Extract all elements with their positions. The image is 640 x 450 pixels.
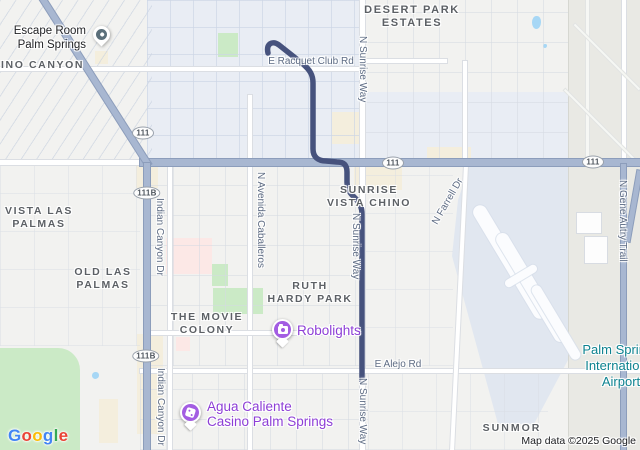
- map-attribution: Map data ©2025 Google: [521, 435, 636, 447]
- neighborhood-vista-las-palmas: VISTA LAS PALMAS: [5, 205, 73, 231]
- road-vista-chino-west: [0, 160, 142, 165]
- neighborhood-line: DESERT PARK: [364, 4, 460, 17]
- airport-terminal-2: [584, 236, 608, 264]
- road-label-gene-autry: N Gene Autry Trail: [617, 180, 628, 272]
- shield-label: 111: [586, 158, 599, 167]
- neighborhood-line: PALMAS: [5, 218, 73, 231]
- casino-label[interactable]: Agua Caliente Casino Palm Springs: [207, 399, 333, 429]
- road-racquet-club-east: [361, 59, 447, 63]
- shield-label: 111: [136, 129, 149, 138]
- neighborhood-line: HARDY PARK: [267, 293, 352, 306]
- google-logo-letter: G: [8, 426, 22, 445]
- road-indian-canyon: [168, 163, 172, 450]
- robolights-marker[interactable]: [272, 319, 293, 340]
- neighborhood-line: SUNRISE: [327, 184, 411, 197]
- road-label-avenida-caballeros: N Avenida Caballeros: [255, 172, 266, 288]
- neighborhood-line: PALMAS: [74, 279, 131, 292]
- commercial-block-6: [99, 399, 118, 443]
- poi-label-line: Escape Room: [0, 24, 86, 38]
- neighborhood-line: THE MOVIE: [171, 311, 243, 324]
- neighborhood-line: ESTATES: [364, 17, 460, 30]
- neighborhood-sunrise-vista-chino: SUNRISE VISTA CHINO: [327, 184, 411, 210]
- road-label-sunrise-mid: N Sunrise Way: [350, 213, 361, 287]
- neighborhood-movie-colony: THE MOVIE COLONY: [171, 311, 243, 337]
- shield-111-palm-canyon: 111: [132, 127, 154, 140]
- road-label-indian-canyon-bottom: Indian Canyon Dr: [155, 368, 166, 450]
- neighborhood-chino-canyon: INO CANYON: [1, 59, 84, 72]
- escape-room-label[interactable]: Escape Room Palm Springs: [0, 24, 86, 52]
- road-gene-autry-north: [622, 0, 626, 164]
- neighborhood-line: RUTH: [267, 280, 352, 293]
- shield-label: 111B: [137, 189, 156, 198]
- google-logo-letter: o: [22, 426, 33, 445]
- road-label-racquet-club: E Racquet Club Rd: [268, 56, 354, 67]
- street-grid-north: [147, 0, 361, 163]
- camera-icon: [278, 326, 288, 334]
- shield-label: 111: [386, 159, 399, 168]
- neighborhood-old-las-palmas: OLD LAS PALMAS: [74, 266, 131, 292]
- shield-111-center: 111: [382, 157, 404, 170]
- road-east-zone-vertical: [586, 0, 589, 164]
- road-label-alejo: E Alejo Rd: [375, 359, 422, 370]
- airport-label-line: Airport: [556, 374, 640, 390]
- neighborhood-line: COLONY: [171, 324, 243, 337]
- map-canvas[interactable]: 111 111B 111 111 111B E Racquet Club Rd …: [0, 0, 640, 450]
- road-label-indian-canyon-mid: Indian Canyon Dr: [154, 198, 165, 294]
- road-farrell-north: [463, 61, 467, 164]
- poi-label-line: Palm Springs: [0, 38, 86, 52]
- neighborhood-ruth-hardy-park: RUTH HARDY PARK: [267, 280, 352, 306]
- airport-label-line: International: [556, 358, 640, 374]
- robolights-label[interactable]: Robolights: [297, 323, 361, 338]
- street-grid-west: [0, 166, 140, 346]
- road-avenida-caballeros: [248, 95, 252, 450]
- neighborhood-line: VISTA LAS: [5, 205, 73, 218]
- shield-label: 111B: [136, 352, 155, 361]
- casino-marker[interactable]: [180, 402, 201, 423]
- neighborhood-sunmor: SUNMOR: [483, 422, 542, 435]
- shield-111-east: 111: [582, 156, 604, 169]
- google-logo[interactable]: Google: [8, 426, 68, 446]
- poi-label-line: Agua Caliente: [207, 399, 333, 414]
- google-logo-letter: g: [43, 426, 54, 445]
- poi-label-line: Casino Palm Springs: [207, 414, 333, 429]
- neighborhood-desert-park-estates: DESERT PARK ESTATES: [364, 4, 460, 30]
- airport-label-line: Palm Springs: [556, 342, 640, 358]
- airport-terminal-1: [576, 212, 602, 234]
- google-logo-letter: o: [32, 426, 43, 445]
- road-palm-canyon-south: [144, 163, 150, 450]
- neighborhood-line: OLD LAS: [74, 266, 131, 279]
- road-label-sunrise-bottom: N Sunrise Way: [357, 378, 368, 450]
- pond-small-2: [92, 372, 99, 379]
- airport-label: Palm Springs International Airport: [556, 342, 640, 390]
- google-logo-letter: e: [59, 426, 69, 445]
- road-label-sunrise-top: N Sunrise Way: [357, 36, 368, 112]
- neighborhood-line: VISTA CHINO: [327, 197, 411, 210]
